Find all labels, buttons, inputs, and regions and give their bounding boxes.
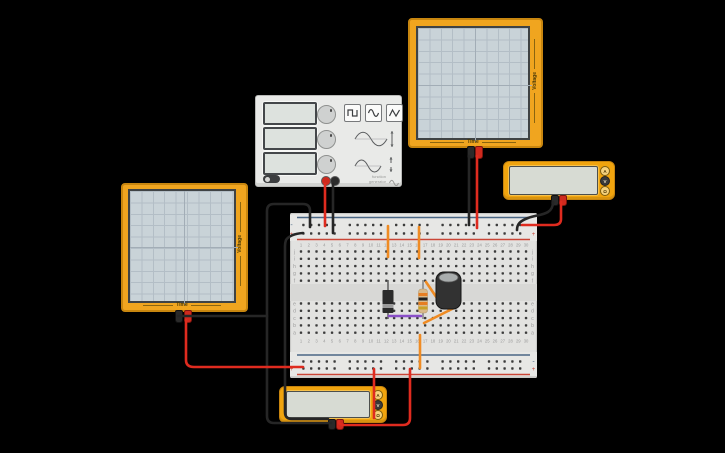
osc-top-voltage-axis: Voltage: [529, 26, 540, 136]
oscilloscope-top[interactable]: Time Voltage: [408, 18, 543, 148]
mm-right-ohms-button[interactable]: Ω: [600, 186, 610, 196]
mm-right-black-terminal[interactable]: [551, 195, 559, 206]
sine-wave-button[interactable]: [365, 104, 382, 122]
mm-right-display: [509, 166, 598, 195]
fgen-amplitude-display: [263, 127, 317, 150]
wire-osc-left-red[interactable]: [186, 320, 303, 367]
multimeter-bottom[interactable]: A V Ω: [279, 386, 387, 423]
triangle-wave-icon: [389, 108, 400, 118]
waveform-icon: [389, 174, 399, 192]
osc-top-red-terminal[interactable]: [475, 146, 483, 159]
mm-bottom-red-terminal[interactable]: [336, 419, 344, 430]
mm-bottom-amps-button[interactable]: A: [373, 390, 383, 400]
fgen-negative-terminal[interactable]: [330, 176, 340, 186]
osc-left-voltage-axis: Voltage: [235, 189, 245, 299]
multimeter-right[interactable]: A V Ω: [503, 161, 615, 200]
breadboard[interactable]: [290, 213, 537, 378]
voltage-label: Voltage: [237, 235, 243, 253]
breadboard-top-rail-strip: [290, 215, 537, 241]
oscilloscope-left[interactable]: Time Voltage: [121, 183, 248, 312]
sine-wave-icon: [368, 108, 379, 118]
fgen-frequency-knob[interactable]: [317, 105, 336, 124]
osc-left-red-terminal[interactable]: [184, 310, 192, 323]
circuit-workspace: function generator Time Voltage Time: [0, 0, 725, 453]
mm-right-amps-button[interactable]: A: [600, 166, 610, 176]
square-wave-button[interactable]: [344, 104, 361, 122]
voltage-label: Voltage: [532, 72, 538, 90]
mm-bottom-ohms-button[interactable]: Ω: [373, 410, 383, 420]
amplitude-diagram: [353, 129, 396, 149]
fgen-offset-knob[interactable]: [317, 155, 336, 174]
osc-top-time-axis: Time: [416, 139, 530, 145]
fgen-label: function generator: [356, 175, 386, 184]
offset-diagram: [353, 154, 396, 174]
breadboard-bottom-rail-strip: [290, 352, 537, 376]
mm-right-volts-button[interactable]: V: [600, 176, 610, 186]
time-label: Time: [176, 302, 188, 308]
square-wave-icon: [347, 108, 358, 118]
osc-top-black-terminal[interactable]: [467, 146, 475, 159]
osc-left-time-axis: Time: [128, 302, 236, 308]
fgen-frequency-display: [263, 102, 317, 125]
breadboard-center-gap: [290, 284, 537, 301]
mm-bottom-volts-button[interactable]: V: [373, 400, 383, 410]
mm-bottom-black-terminal[interactable]: [328, 419, 336, 430]
osc-left-black-terminal[interactable]: [175, 310, 183, 323]
osc-top-screen: [416, 26, 530, 140]
mm-bottom-display: [286, 391, 370, 418]
mm-right-red-terminal[interactable]: [559, 195, 567, 206]
triangle-wave-button[interactable]: [386, 104, 403, 122]
time-label: Time: [467, 139, 479, 145]
function-generator[interactable]: function generator: [255, 95, 402, 187]
fgen-offset-display: [263, 152, 317, 175]
osc-left-screen: [128, 189, 236, 303]
power-toggle[interactable]: [263, 175, 280, 183]
fgen-amplitude-knob[interactable]: [317, 130, 336, 149]
